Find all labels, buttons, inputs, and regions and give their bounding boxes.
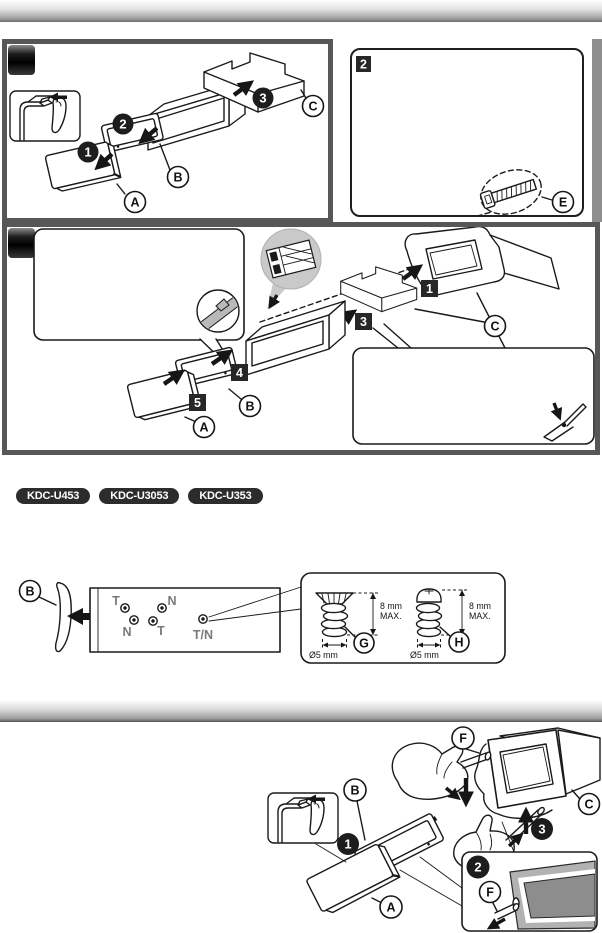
part-label-c: C (579, 794, 600, 815)
svg-text:E: E (559, 196, 567, 210)
step-box-3: 3 (355, 313, 372, 330)
model-badges: KDC-U453 KDC-U3053 KDC-U353 (16, 488, 263, 504)
part-label-b: B (20, 581, 41, 602)
svg-text:H: H (454, 636, 463, 650)
svg-text:1: 1 (344, 837, 351, 852)
hand-top (392, 743, 491, 799)
svg-text:C: C (308, 100, 317, 114)
part-label-c: C (485, 316, 506, 337)
panel-install-kit: C 3 B 2 A (2, 39, 333, 223)
part-label-a: A (380, 896, 402, 918)
svg-text:C: C (490, 320, 499, 334)
svg-text:1: 1 (84, 145, 91, 160)
step-1-badge: 1 (337, 833, 359, 855)
part-label-a: A (194, 417, 215, 438)
panel-install-dash: 1 C 3 (2, 222, 600, 455)
part-label-g: G (354, 633, 374, 653)
step-3-badge: 3 (253, 88, 274, 109)
panel-number-box: 2 (356, 56, 371, 72)
part-label-c: C (303, 96, 324, 117)
strap-part (475, 162, 547, 215)
svg-text:MAX.: MAX. (380, 611, 402, 621)
model-badge: KDC-U3053 (99, 488, 179, 504)
part-label-e: E (553, 192, 574, 213)
model-badge: KDC-U353 (188, 488, 262, 504)
svg-text:F: F (486, 886, 494, 900)
hole-label: T (157, 624, 165, 638)
section-divider-bar (0, 700, 602, 722)
top-gradient-bar (0, 0, 602, 22)
panel-two-diagram: 2 E (352, 50, 582, 215)
svg-text:2: 2 (360, 58, 367, 72)
part-label-f2: F (480, 882, 501, 903)
model-badge: KDC-U453 (16, 488, 90, 504)
manual-page: C 3 B 2 A (0, 0, 602, 933)
part-label-b: B (240, 396, 261, 417)
svg-text:A: A (130, 196, 139, 210)
bend-tab-callout (353, 324, 594, 444)
svg-text:8 mm: 8 mm (380, 601, 402, 611)
hole-label: N (167, 594, 176, 608)
screw-spec-diagram: B T N N T T/N (12, 569, 593, 669)
step-box-4: 4 (231, 364, 248, 381)
part-label-h: H (449, 632, 469, 652)
svg-text:4: 4 (236, 366, 243, 380)
svg-text:Ø5 mm: Ø5 mm (309, 650, 338, 660)
right-edge-strip (592, 39, 602, 222)
removal-diagram: C F 3 B (0, 722, 602, 933)
part-label-b: B (344, 779, 366, 801)
panel-two: 2 E (350, 48, 584, 217)
step-box-1: 1 (421, 280, 438, 297)
svg-text:MAX.: MAX. (469, 611, 491, 621)
svg-text:5: 5 (194, 396, 201, 410)
svg-text:2: 2 (474, 860, 481, 875)
head-unit (246, 301, 345, 375)
step-box-5: 5 (189, 394, 206, 411)
svg-text:A: A (199, 421, 208, 435)
install-kit-diagram: C 3 B 2 A (7, 44, 328, 218)
svg-text:2: 2 (119, 117, 126, 132)
svg-text:F: F (459, 732, 467, 746)
svg-text:1: 1 (426, 282, 433, 296)
key-insert-inset: 2 F (462, 852, 597, 931)
part-label-b: B (168, 167, 189, 188)
press-release-inset (268, 793, 338, 843)
part-label-f: F (452, 727, 474, 749)
note-callout (34, 229, 245, 366)
mounting-sleeve (341, 267, 417, 312)
hole-label: N (122, 625, 131, 639)
hole-label: T (112, 594, 120, 608)
svg-text:3: 3 (538, 822, 545, 837)
svg-text:B: B (25, 585, 34, 599)
svg-text:3: 3 (259, 91, 266, 106)
hole-label: T/N (193, 628, 213, 642)
svg-text:B: B (173, 171, 182, 185)
part-label-a: A (125, 192, 146, 213)
step-1-badge: 1 (78, 142, 99, 163)
svg-text:A: A (386, 901, 395, 915)
install-dash-diagram: 1 C 3 (7, 227, 595, 450)
svg-text:C: C (584, 798, 593, 812)
latch-detail-bubble (261, 229, 321, 309)
step-3-badge: 3 (531, 818, 553, 840)
step-2-badge: 2 (467, 856, 490, 879)
trim-side-profile (56, 583, 72, 652)
svg-text:B: B (245, 400, 254, 414)
svg-text:B: B (350, 784, 359, 798)
step-2-badge: 2 (113, 114, 134, 135)
press-release-inset (10, 91, 80, 141)
svg-text:Ø5 mm: Ø5 mm (410, 650, 439, 660)
svg-text:G: G (359, 637, 369, 651)
svg-text:3: 3 (360, 315, 367, 329)
svg-text:8 mm: 8 mm (469, 601, 491, 611)
